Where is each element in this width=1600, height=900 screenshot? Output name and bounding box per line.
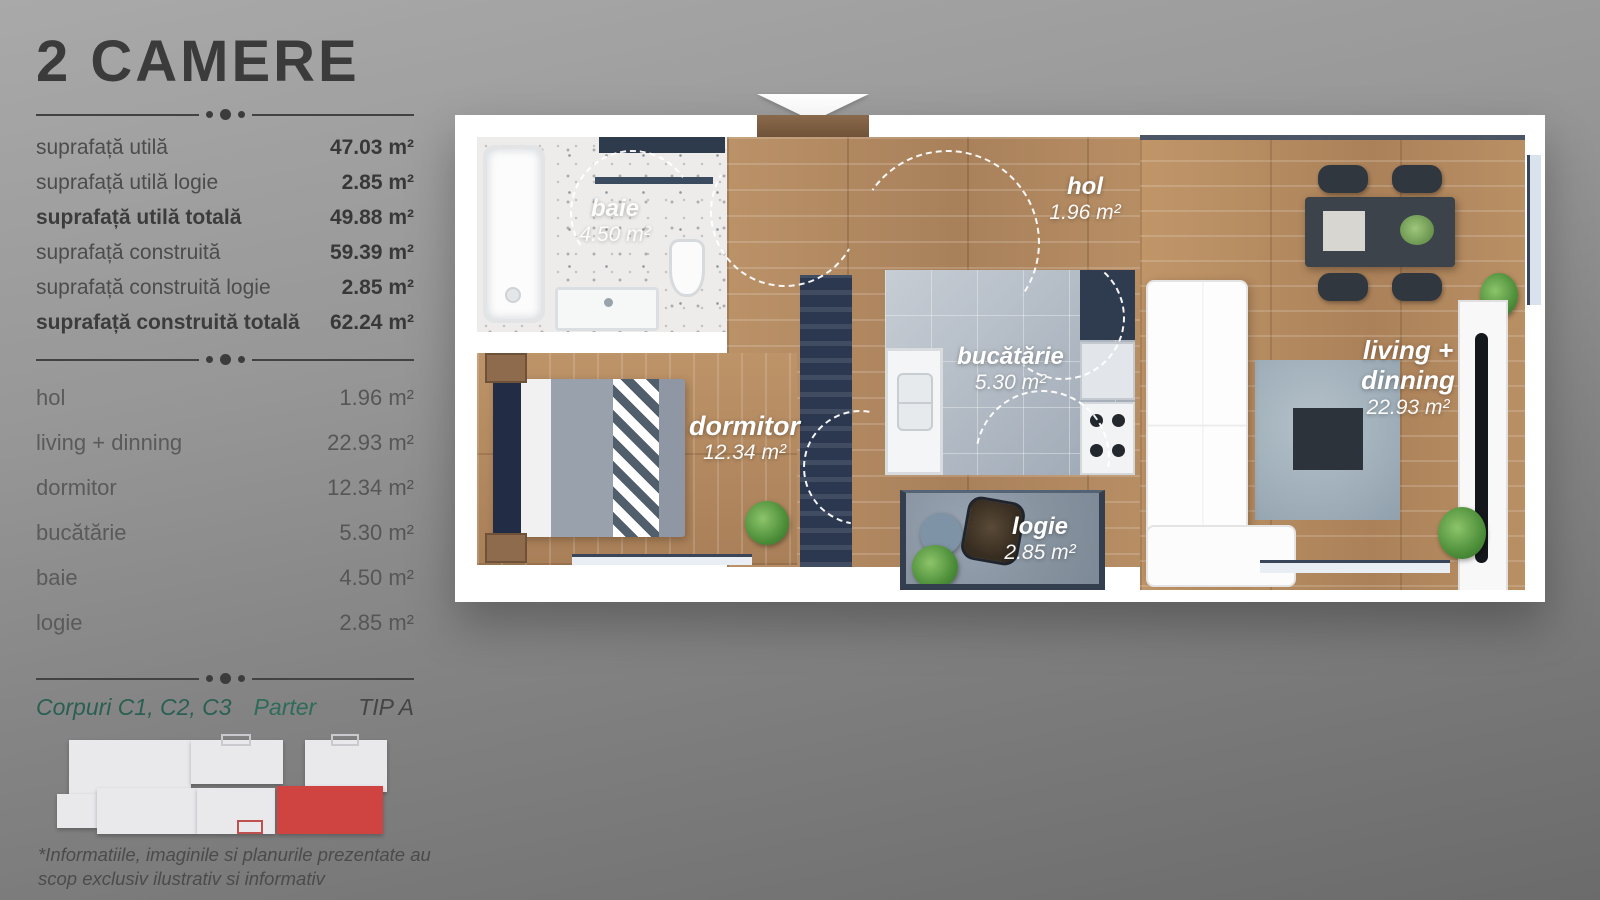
divider-line [252, 678, 415, 680]
fridge [1080, 342, 1135, 400]
table-row: living + dinning 22.93 m² [36, 420, 414, 465]
row-value: 59.39 m² [330, 238, 414, 267]
stove-burner [1112, 414, 1125, 427]
unit-outline [221, 734, 251, 746]
towel-rail [595, 177, 713, 184]
table-row: bucătărie 5.30 m² [36, 510, 414, 555]
row-label: suprafață utilă totală [36, 203, 241, 232]
divider-dot [220, 109, 231, 120]
row-value: 47.03 m² [330, 133, 414, 162]
room-name: dinning [1333, 365, 1483, 395]
building-block [57, 794, 97, 828]
level-label: Parter [254, 694, 317, 721]
row-value: 62.24 m² [330, 308, 414, 337]
table-row-total: suprafață construită totală 62.24 m² [36, 305, 414, 340]
page-title: 2 CAMERE [36, 28, 414, 95]
row-label: living + dinning [36, 423, 182, 462]
room-name: bucătărie [933, 343, 1088, 370]
divider [36, 109, 414, 120]
divider-line [252, 359, 415, 361]
row-label: hol [36, 378, 65, 417]
building-footprint-map [55, 728, 397, 836]
room-name: logie [975, 513, 1105, 540]
nightstand [485, 353, 527, 383]
room-name: living + [1333, 335, 1483, 365]
info-panel: 2 CAMERE suprafață utilă 47.03 m² supraf… [36, 28, 414, 721]
highlighted-unit-block [277, 786, 383, 834]
row-value: 2.85 m² [342, 273, 414, 302]
label-hol: hol 1.96 m² [1025, 173, 1145, 226]
row-label: suprafață construită totală [36, 308, 300, 337]
bathroom-vanity [555, 287, 659, 331]
row-label: suprafață construită [36, 238, 220, 267]
building-block [197, 788, 275, 834]
divider-dot [220, 673, 231, 684]
row-value: 22.93 m² [327, 423, 414, 462]
stove-burner [1090, 444, 1103, 457]
divider [36, 354, 414, 365]
summary-area-table: suprafață utilă 47.03 m² suprafață utilă… [36, 130, 414, 340]
building-block [191, 740, 283, 784]
divider-line [36, 359, 199, 361]
rooms-area-table: hol 1.96 m² living + dinning 22.93 m² do… [36, 375, 414, 645]
row-label: suprafață utilă [36, 133, 168, 162]
kitchen-sink [897, 373, 933, 431]
sofa-chaise [1146, 525, 1296, 587]
divider-dot [206, 111, 213, 118]
table-row: suprafață utilă 47.03 m² [36, 130, 414, 165]
room-area: 5.30 m² [933, 370, 1088, 396]
room-area: 22.93 m² [1333, 395, 1483, 421]
floorplan: baie 4.50 m² hol 1.96 m² dormitor 12.34 … [455, 115, 1545, 602]
living-window [1260, 560, 1450, 573]
divider-dot [220, 354, 231, 365]
row-value: 5.30 m² [339, 513, 414, 552]
dining-chair [1318, 273, 1368, 301]
row-label: baie [36, 558, 78, 597]
bed-headboard [493, 379, 521, 537]
room-area: 1.96 m² [1025, 200, 1145, 226]
bathtub [483, 145, 545, 323]
wall-accent [1140, 135, 1525, 140]
unit-outline [237, 820, 263, 834]
room-name: hol [1025, 173, 1145, 200]
bed-pillows [521, 379, 551, 537]
plant [912, 545, 958, 589]
kitchen-cabinet [1080, 270, 1135, 340]
divider-dot [238, 675, 245, 682]
divider-line [36, 114, 199, 116]
row-label: bucătărie [36, 513, 127, 552]
label-baie: baie 4.50 m² [545, 195, 685, 248]
row-value: 2.85 m² [342, 168, 414, 197]
dining-chair [1318, 165, 1368, 193]
table-row: baie 4.50 m² [36, 555, 414, 600]
table-row: suprafață construită logie 2.85 m² [36, 270, 414, 305]
row-label: suprafață utilă logie [36, 168, 218, 197]
divider-dot [238, 356, 245, 363]
table-row: logie 2.85 m² [36, 600, 414, 645]
dining-chair [1392, 165, 1442, 193]
divider-line [36, 678, 199, 680]
room-name: baie [545, 195, 685, 222]
building-info-row: Corpuri C1, C2, C3 Parter TIP A [36, 694, 414, 721]
divider-dot [206, 675, 213, 682]
building-block [97, 788, 197, 834]
row-label: dormitor [36, 468, 117, 507]
room-area: 2.85 m² [975, 540, 1105, 566]
table-row-total: suprafață utilă totală 49.88 m² [36, 200, 414, 235]
stove-burner [1090, 414, 1103, 427]
row-value: 12.34 m² [327, 468, 414, 507]
label-living-dinning: living + dinning 22.93 m² [1333, 335, 1483, 421]
dining-table [1305, 197, 1455, 267]
table-row: hol 1.96 m² [36, 375, 414, 420]
divider-dot [206, 356, 213, 363]
divider-line [252, 114, 415, 116]
room-area: 4.50 m² [545, 222, 685, 248]
building-block [305, 740, 387, 792]
row-label: suprafață construită logie [36, 273, 271, 302]
bathroom-shelf [599, 137, 725, 153]
faucet [604, 298, 613, 307]
entrance-doorway [757, 115, 869, 137]
table-row: suprafață utilă logie 2.85 m² [36, 165, 414, 200]
row-value: 4.50 m² [339, 558, 414, 597]
bathtub-drain [505, 287, 521, 303]
table-placemat [1323, 211, 1365, 251]
table-plant [1400, 215, 1434, 245]
stove-burner [1112, 444, 1125, 457]
table-row: suprafață construită 59.39 m² [36, 235, 414, 270]
unit-outline [331, 734, 359, 746]
label-bucatarie: bucătărie 5.30 m² [933, 343, 1088, 396]
room-area: 12.34 m² [667, 440, 822, 466]
stove [1080, 402, 1135, 475]
side-window [1527, 155, 1541, 305]
bed-duvet [551, 379, 613, 537]
type-label: TIP A [358, 694, 414, 721]
corpuri-label: Corpuri C1, C2, C3 [36, 694, 232, 721]
bed [493, 379, 685, 537]
label-dormitor: dormitor 12.34 m² [667, 413, 822, 466]
dining-chair [1392, 273, 1442, 301]
plant [1438, 507, 1486, 559]
label-logie: logie 2.85 m² [975, 513, 1105, 566]
disclaimer-text: *Informatiile, imaginile si planurile pr… [38, 843, 468, 891]
bed-zigzag-throw [613, 379, 659, 537]
bedroom-window [572, 554, 752, 565]
divider [36, 673, 414, 684]
table-row: dormitor 12.34 m² [36, 465, 414, 510]
room-name: dormitor [667, 413, 822, 440]
divider-dot [238, 111, 245, 118]
plant [745, 501, 789, 545]
row-value: 1.96 m² [339, 378, 414, 417]
row-label: logie [36, 603, 82, 642]
row-value: 49.88 m² [330, 203, 414, 232]
nightstand [485, 533, 527, 563]
row-value: 2.85 m² [339, 603, 414, 642]
